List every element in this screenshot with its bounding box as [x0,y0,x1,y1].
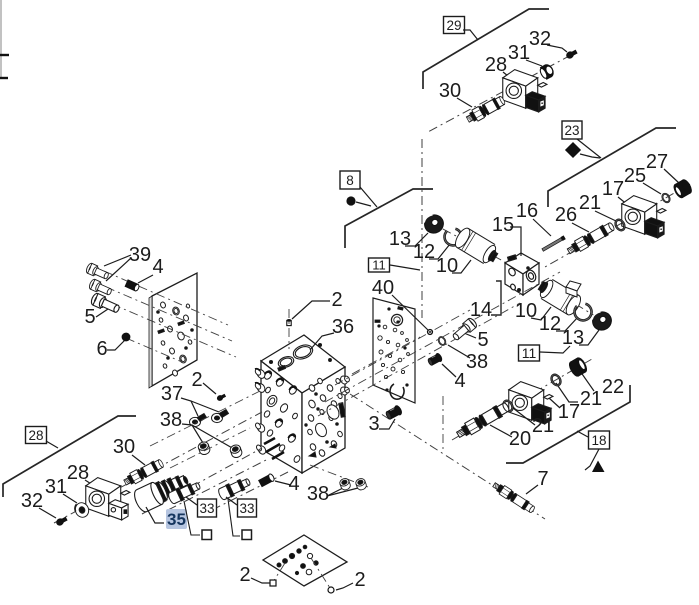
svg-text:32: 32 [529,28,551,50]
svg-text:26: 26 [555,204,577,226]
svg-text:15: 15 [492,214,514,236]
svg-text:37: 37 [161,383,183,405]
svg-text:14: 14 [470,299,492,321]
svg-text:11: 11 [522,345,537,361]
svg-text:13: 13 [389,228,411,250]
svg-text:7: 7 [537,468,548,490]
svg-text:4: 4 [152,256,163,278]
svg-text:16: 16 [516,200,538,222]
svg-text:28: 28 [28,428,43,443]
svg-text:35: 35 [167,510,186,529]
svg-text:39: 39 [129,244,151,266]
svg-text:36: 36 [332,316,354,338]
svg-text:21: 21 [579,192,601,214]
svg-text:4: 4 [454,370,465,392]
svg-text:38: 38 [307,483,329,505]
svg-text:2: 2 [354,569,365,591]
svg-text:25: 25 [624,165,646,187]
svg-text:18: 18 [591,433,606,448]
svg-text:38: 38 [466,351,488,373]
svg-text:22: 22 [602,376,624,398]
svg-text:17: 17 [602,178,624,200]
svg-text:29: 29 [446,18,461,33]
svg-text:2: 2 [331,289,342,311]
svg-text:33: 33 [239,501,254,516]
svg-text:12: 12 [413,241,435,263]
svg-text:6: 6 [96,338,107,360]
svg-text:17: 17 [558,401,580,423]
svg-text:3: 3 [368,413,379,435]
svg-text:21: 21 [532,415,554,437]
svg-text:5: 5 [84,306,95,328]
svg-text:40: 40 [372,277,394,299]
svg-text:20: 20 [509,428,531,450]
svg-text:10: 10 [436,255,458,277]
svg-text:2: 2 [239,564,250,586]
svg-text:30: 30 [113,436,135,458]
svg-text:12: 12 [539,313,561,335]
svg-text:4: 4 [288,473,299,495]
svg-text:8: 8 [346,173,354,188]
svg-text:5: 5 [477,329,488,351]
svg-text:33: 33 [199,501,214,516]
svg-text:13: 13 [562,327,584,349]
svg-text:38: 38 [160,409,182,431]
svg-text:23: 23 [564,123,579,138]
svg-text:2: 2 [191,369,202,391]
svg-text:11: 11 [372,258,386,273]
svg-text:21: 21 [580,388,602,410]
